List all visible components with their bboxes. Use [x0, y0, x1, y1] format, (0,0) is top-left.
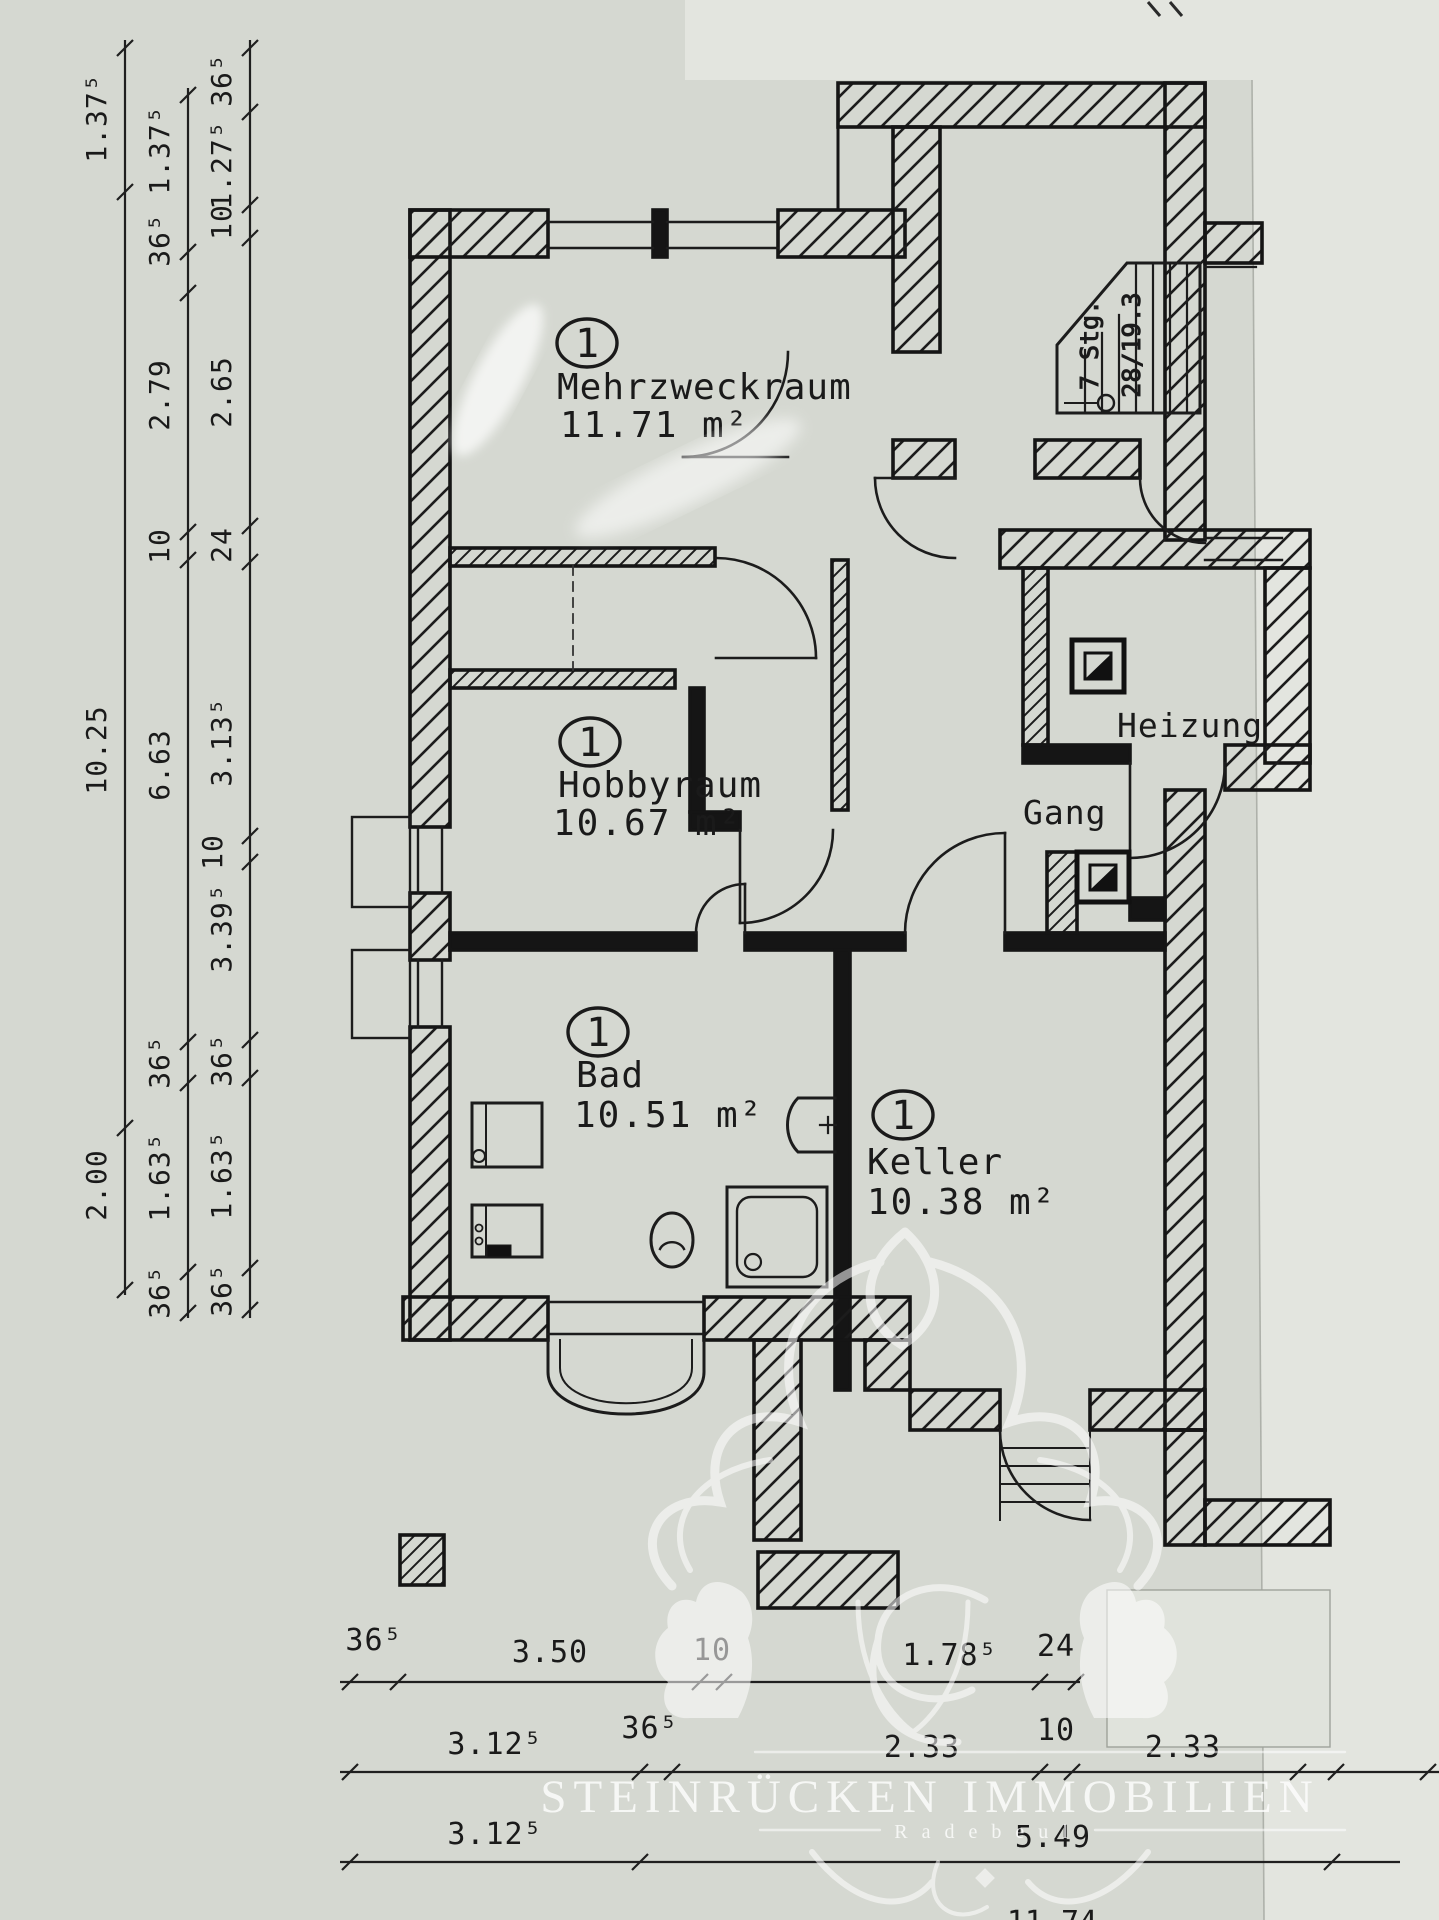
- dimension-label: 36⁵: [345, 1623, 402, 1658]
- dimension-label: 24: [205, 527, 238, 563]
- dimension-label: 10: [143, 528, 176, 564]
- room-name: Keller: [867, 1142, 1003, 1183]
- dimension-label: 3.39⁵: [205, 883, 238, 972]
- dimension-label: 36⁵: [205, 1263, 238, 1317]
- dimension-label: 3.13⁵: [205, 697, 238, 786]
- wall-stair-west: [893, 127, 940, 352]
- wall-heizung-east: [1265, 568, 1310, 763]
- dimension-label: 1.37⁵: [80, 73, 113, 162]
- wall-keller-south-b: [1090, 1390, 1205, 1430]
- watermark-city: Radebeul: [894, 1821, 1082, 1843]
- dimension-label: 36⁵: [205, 53, 238, 107]
- room-name: Bad: [576, 1055, 644, 1096]
- dimension-label: 1.37⁵: [143, 105, 176, 194]
- wall-gang-partition: [832, 560, 848, 810]
- wall-top-west: [410, 210, 548, 257]
- dimension-label: 2.65: [205, 356, 238, 427]
- wall-stair-top: [838, 83, 1205, 127]
- room-gang-label: Gang: [1023, 793, 1106, 832]
- dimension-label: 3.12⁵: [447, 1727, 542, 1762]
- room-name: Hobbyraum: [558, 765, 762, 806]
- wall-partition-upper: [450, 548, 715, 566]
- room-area: 10.51 m²: [574, 1095, 763, 1136]
- dimension-label: 2.33: [1145, 1730, 1221, 1765]
- dimension-label-clipped: 11.74: [1007, 1905, 1097, 1920]
- floorplan-photo: 7 Stg. 28/19.3: [0, 0, 1439, 1920]
- wall-top-pier: [653, 210, 667, 257]
- wall-divider-a: [450, 933, 696, 950]
- dimension-label: 10.25: [80, 705, 113, 794]
- dimension-label: 10: [205, 204, 238, 240]
- chimney-icon-2: [1077, 852, 1129, 902]
- dimension-label: 36⁵: [143, 213, 176, 267]
- dimension-label: 10: [1037, 1713, 1075, 1748]
- room-area: 10.67 m²: [553, 803, 742, 844]
- wall-south-west: [403, 1297, 548, 1340]
- dimension-label: 2.00: [80, 1149, 113, 1220]
- wall-divider-b: [745, 933, 905, 950]
- wall-entrance-east: [1165, 1430, 1205, 1545]
- watermark-company: STEINRÜCKEN IMMOBILIEN: [540, 1771, 1319, 1823]
- dimension-label: 36⁵: [143, 1265, 176, 1319]
- wall-left-lower: [410, 1027, 450, 1340]
- dimension-label: 10: [196, 834, 229, 870]
- wall-entrance-bottom: [1205, 1500, 1330, 1545]
- unit-number: 1: [891, 1093, 915, 1139]
- wall-heizung-south-stub: [1225, 745, 1310, 790]
- dimension-label: 36⁵: [143, 1035, 176, 1089]
- wall-heizung-north: [1000, 530, 1310, 568]
- unit-number: 1: [578, 720, 602, 766]
- wall-left-mid: [410, 893, 450, 960]
- dimension-label: 3.50: [512, 1635, 588, 1670]
- dimension-label: 1.63⁵: [143, 1132, 176, 1221]
- wall-keller-south-a: [910, 1390, 1000, 1430]
- wall-heizung-south: [1023, 745, 1130, 763]
- wall-top-east: [778, 210, 905, 257]
- dimension-label: 1.63⁵: [205, 1130, 238, 1219]
- dimension-label: 1.78⁵: [902, 1638, 997, 1673]
- wall-east-lower: [1165, 790, 1205, 1430]
- floorplan-svg: 7 Stg. 28/19.3: [0, 0, 1439, 1920]
- pillar: [400, 1535, 444, 1585]
- wall-partition-lower: [450, 670, 675, 688]
- wall-gang-north-b: [1035, 440, 1140, 478]
- wall-left-upper: [410, 210, 450, 827]
- dimension-label: 36⁵: [205, 1033, 238, 1087]
- room-area: 10.38 m²: [867, 1182, 1056, 1223]
- wall-heizung-west: [1023, 568, 1048, 745]
- wall-gang-north-a: [893, 440, 955, 478]
- wall-divider-c: [1005, 933, 1165, 950]
- wall-stub-right: [1205, 223, 1262, 263]
- wall-chimney-stub-v: [1047, 852, 1077, 933]
- dimension-label: 24: [1037, 1629, 1075, 1664]
- wall-chimney-stub-h: [1130, 898, 1165, 920]
- room-heizung-label: Heizung: [1117, 706, 1263, 745]
- room-name: Mehrzweckraum: [557, 367, 852, 408]
- dimension-label: 36⁵: [621, 1711, 678, 1746]
- wall-lightwell-h: [758, 1552, 898, 1608]
- dimension-label: 6.63: [143, 729, 176, 800]
- dimension-label: 2.79: [143, 359, 176, 430]
- chimney-icon: [1072, 640, 1124, 692]
- dimension-label: 3.12⁵: [447, 1817, 542, 1852]
- unit-number: 1: [586, 1010, 610, 1056]
- stair-count-label: 7 Stg.: [1075, 300, 1104, 390]
- dimension-label: 1.27⁵: [205, 120, 238, 209]
- stair-rise-run-label: 28/19.3: [1117, 292, 1146, 397]
- wall-lightwell-v: [754, 1340, 801, 1540]
- unit-number: 1: [575, 321, 599, 367]
